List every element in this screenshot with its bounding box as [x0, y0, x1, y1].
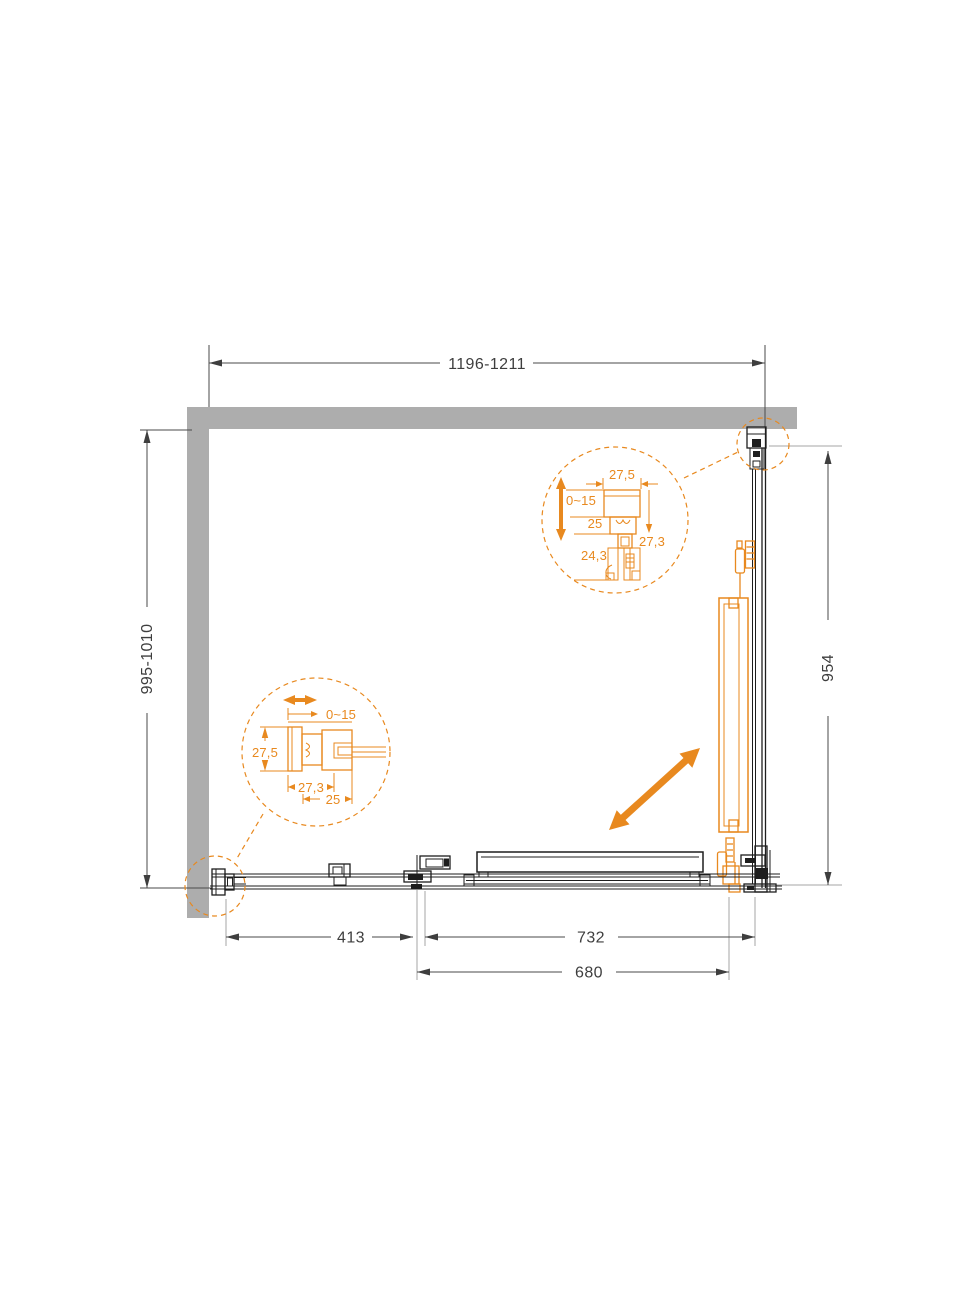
detail-top-channel-label: 25	[588, 516, 603, 531]
detail-bottom-adjustment-label: 0~15	[326, 707, 356, 722]
detail-top-adjustment-label: 0~15	[566, 493, 596, 508]
door-roller-bottom-right	[718, 838, 741, 892]
detail-callout-top: 27,5 0~15 25 24,3 27,3	[542, 418, 789, 593]
door-roller-top-right	[736, 541, 755, 598]
detail-bottom-channel-label: 25	[326, 792, 341, 807]
wall-left	[187, 429, 209, 918]
corner-profile-top-right	[747, 427, 766, 469]
dim-bottom-door: 680	[417, 965, 729, 982]
dim-left-depth-label: 995-1010	[139, 624, 156, 695]
side-panel-right-glass	[753, 427, 766, 888]
dim-extension-lines	[226, 890, 755, 980]
dim-bottom-opening: 732	[425, 930, 755, 947]
dim-bottom-door-label: 680	[575, 965, 603, 982]
detail-top-width-label: 27,5	[609, 467, 635, 482]
corner-assembly-bottom-right	[741, 846, 776, 892]
dim-bottom-fixed-panel-label: 413	[337, 930, 365, 947]
detail-top-lower-depth-label: 24,3	[581, 548, 607, 563]
detail-top-depth-label: 27,3	[639, 534, 665, 549]
dim-bottom-opening-label: 732	[577, 930, 605, 947]
dim-right-height: 954	[769, 446, 842, 885]
dim-right-height-label: 954	[820, 654, 837, 682]
wall-profile-left	[212, 869, 246, 895]
detail-bottom-width-label: 27,3	[298, 780, 324, 795]
dim-bottom-fixed-panel: 413	[226, 930, 413, 947]
dim-top-width-label: 1196-1211	[448, 356, 526, 373]
slide-direction-arrow	[609, 748, 700, 830]
shower-plan-drawing: 1196-1211 995-1010 954 413	[0, 0, 975, 1300]
detail-bottom-height-label: 27,5	[252, 745, 278, 760]
door-roller-bracket-left	[404, 855, 450, 889]
sliding-door-bottom-panel	[464, 852, 710, 886]
sliding-door-right-panel	[719, 598, 748, 832]
bottom-rail	[210, 874, 782, 889]
wall-top	[187, 407, 797, 429]
